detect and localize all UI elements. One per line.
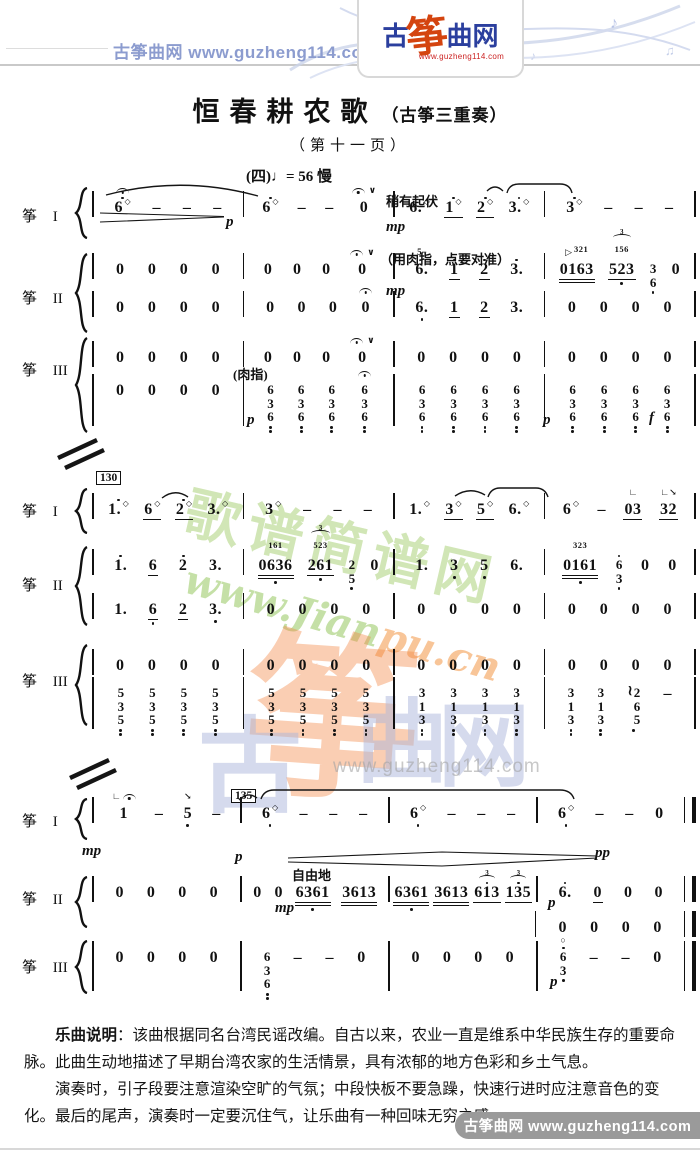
note-body: 0 — [321, 262, 332, 278]
note-body: 313 — [597, 686, 606, 727]
note-body: 25 — [348, 558, 357, 585]
articulation-mark: 5⌐ — [417, 248, 427, 257]
note-body: 6◇ — [409, 806, 427, 822]
measure: ○63––0 — [538, 932, 684, 985]
measure: 6◇–∟03∟↘32 — [545, 484, 694, 528]
note-number: 3. — [509, 200, 522, 216]
note-body: 0 — [177, 885, 188, 901]
note-number: 0 — [329, 300, 338, 316]
note-number: 2 — [179, 558, 188, 574]
note-body: 535 — [267, 686, 276, 727]
note-body: 636 — [512, 383, 521, 424]
rest-token: 0 — [263, 244, 274, 286]
note-body: 636 — [263, 950, 272, 991]
note-body: 6◇ — [113, 200, 131, 216]
measure: 3◇––– — [545, 182, 694, 224]
measure: 0000 — [94, 244, 243, 286]
note-number: 3. — [209, 558, 222, 574]
note-body: 3◇ — [565, 200, 583, 216]
chord-token: 535 — [299, 668, 308, 736]
tremolo-icon: ◇ — [455, 500, 461, 508]
note-number: 0 — [506, 950, 515, 966]
note-token: 6. — [414, 282, 429, 324]
chord-stack: 636 — [328, 383, 335, 424]
note-token: 3◇ — [264, 484, 282, 526]
note-token: 3. — [208, 584, 223, 626]
chord-note: 3 — [419, 713, 426, 727]
chord-token: 535 — [211, 668, 220, 736]
note-body: – — [594, 806, 605, 822]
note-number: 135 — [506, 885, 532, 901]
chord-token: ≀265 — [626, 668, 641, 735]
note-token: 1610636 — [258, 540, 294, 587]
dash-token: – — [624, 788, 635, 830]
note-body: 1 — [449, 262, 460, 280]
chord-note: 3 — [601, 397, 608, 411]
note-body: 0 — [631, 300, 642, 316]
chord-note: 3 — [419, 686, 426, 700]
note-body: 0 — [115, 300, 126, 316]
measure: 0000 — [94, 365, 243, 407]
note-number: 5 — [477, 502, 486, 518]
octave-dot — [363, 426, 366, 429]
note-token: 1.◇ — [107, 484, 130, 526]
measure: 313313≀265– — [545, 668, 694, 736]
note-body: – — [634, 200, 645, 216]
chord-note: 6 — [616, 558, 623, 572]
note-token: 2 — [479, 282, 490, 326]
note-token: 2 — [178, 540, 189, 582]
note-body: 0 — [631, 350, 642, 366]
note-body: – — [603, 200, 614, 216]
note-marks: 161 — [268, 540, 282, 553]
note-marks — [359, 282, 372, 295]
note-body: 0 — [652, 950, 663, 966]
note-body: 313 — [418, 686, 427, 727]
chord-token: 636 — [568, 365, 577, 433]
chord-note: 6 — [267, 410, 274, 424]
note-number: 0 — [513, 602, 522, 618]
note-body: 313 — [481, 686, 490, 727]
note-body: 63 — [559, 950, 568, 977]
note-number: 0 — [653, 950, 662, 966]
annotation-reh: 130 — [96, 471, 121, 485]
chord-note: 1 — [450, 700, 457, 714]
breath-mark: ∨ — [367, 336, 374, 345]
octave-dot — [571, 426, 574, 429]
note-body: 6 — [148, 558, 159, 576]
chord-stack: 636 — [419, 383, 426, 424]
octave-dot — [599, 729, 602, 732]
part-label: 筝 II — [22, 888, 63, 909]
note-token: 3◇ — [565, 182, 583, 224]
chord-note: 3 — [632, 397, 639, 411]
chord-stack: 313 — [513, 686, 520, 727]
octave-dot — [452, 733, 455, 736]
octave-dot — [270, 733, 273, 736]
note-number: 2 — [480, 262, 489, 278]
dash-token: – — [212, 182, 223, 224]
octave-dot — [214, 729, 217, 732]
note-marks — [116, 182, 129, 195]
fermata-icon — [350, 338, 363, 345]
note-body: 636 — [631, 383, 640, 424]
articulation-mark: ∟ — [112, 792, 121, 801]
note-token: 6◇ — [409, 788, 427, 830]
note-number: 6. — [510, 558, 523, 574]
chord-stack: 636 — [482, 383, 489, 424]
note-number: 0 — [298, 602, 307, 618]
note-token: 5⌐6. — [414, 244, 429, 286]
note-token: 5◇ — [476, 484, 494, 528]
tremolo-icon: ◇ — [222, 500, 228, 508]
chord-note: 1 — [568, 700, 575, 714]
note-token: 2 — [178, 584, 189, 628]
note-number: 3 — [445, 502, 454, 518]
octave-dot — [421, 426, 424, 429]
note-number: 6 — [410, 806, 419, 822]
note-body: 0 — [369, 558, 380, 574]
dash-token: – — [151, 182, 162, 224]
rest-token: 0 — [265, 282, 276, 324]
tremolo-icon: ◇ — [123, 500, 129, 508]
rest-token: 0 — [567, 584, 578, 626]
note-token: ∟03 — [623, 484, 642, 528]
note-number: 0 — [672, 262, 681, 278]
note-body: 535 — [180, 686, 189, 727]
note-body: 0 — [263, 262, 274, 278]
note-token: 6◇ — [557, 788, 575, 830]
low-octave-dots — [186, 822, 189, 830]
chord-token: 636 — [600, 365, 609, 433]
measure: 0000 — [395, 584, 544, 626]
chord-token: 636 — [512, 365, 521, 433]
note-number: 0163 — [560, 262, 594, 278]
note-number: 0 — [178, 950, 187, 966]
low-octave-dots — [570, 727, 573, 736]
octave-dot — [515, 733, 518, 736]
note-number: – — [359, 806, 368, 822]
system-3: 135mpppp自由地mppp筝 I∟1–↘5–6◇–––6◇–––6◇––0筝… — [0, 788, 700, 1020]
note-body: 0 — [115, 350, 126, 366]
chord-note: 6 — [298, 383, 305, 397]
measure: 6◇––– — [242, 788, 388, 830]
rest-token: 0 — [640, 540, 651, 582]
chord-note: 6 — [450, 383, 457, 397]
chord-token: 313 — [481, 668, 490, 736]
note-number: 6. — [559, 885, 572, 901]
rest-token: 0 — [115, 244, 126, 286]
note-number: 6. — [409, 200, 422, 216]
chord-note: 6 — [560, 950, 567, 964]
note-marks: ∟ — [112, 788, 136, 801]
tremolo-icon: ◇ — [487, 500, 493, 508]
chord-note: 6 — [419, 410, 426, 424]
dash-token: – — [324, 932, 335, 974]
note-body: 0161 — [562, 558, 598, 579]
chord-note: 3 — [598, 686, 605, 700]
note-body: 6◇ — [557, 806, 575, 822]
note-number: – — [665, 200, 674, 216]
note-marks: ↘ — [184, 788, 192, 801]
note-marks: ○ — [560, 932, 565, 945]
chord-note: 3 — [482, 397, 489, 411]
note-marks — [358, 365, 371, 378]
chord-note: 5 — [212, 686, 219, 700]
octave-dot — [421, 729, 424, 732]
note-body: 0 — [505, 950, 516, 966]
barline — [694, 493, 696, 519]
rest-token: 0 — [115, 365, 126, 407]
note-number: 6 — [114, 200, 123, 216]
note-token: 6. — [509, 540, 524, 582]
chord-token: 636 — [631, 365, 640, 433]
note-number: 6. — [415, 300, 428, 316]
note-number: 0 — [632, 602, 641, 618]
note-body: 0 — [480, 602, 491, 618]
chord-stack: 535 — [149, 686, 156, 727]
note-token: 3230161 — [562, 540, 598, 587]
note-token: 1 — [449, 282, 460, 326]
note-number: 0 — [148, 350, 157, 366]
note-number: 1 — [450, 300, 459, 316]
note-number: 6 — [149, 558, 158, 574]
breath-mark: ∨ — [369, 186, 376, 195]
note-body: 0 — [211, 300, 222, 316]
part-label: 筝 I — [22, 205, 58, 226]
note-token: 3. — [208, 540, 223, 582]
note-marks: ∨ — [350, 244, 374, 257]
note-number: – — [325, 950, 334, 966]
grace-notes: 156 — [615, 244, 629, 254]
chord-token: 535 — [362, 668, 371, 736]
octave-dot — [300, 426, 303, 429]
note-body: 2 — [479, 262, 490, 280]
note-number: 0 — [322, 350, 331, 366]
notation-line: 000000006.123.0000 — [92, 282, 696, 326]
fermata-icon — [350, 250, 363, 257]
note-body: 0 — [512, 350, 523, 366]
note-number: 0 — [360, 200, 369, 216]
note-number: 0 — [253, 885, 262, 901]
note-number: – — [447, 806, 456, 822]
rest-token: 0 — [147, 282, 158, 324]
note-body: 63 — [615, 558, 624, 585]
note-body: 0 — [361, 602, 372, 618]
chord-note: 3 — [181, 700, 188, 714]
chord-note: 3 — [149, 700, 156, 714]
note-number: 0 — [358, 350, 367, 366]
low-octave-dots — [452, 727, 455, 736]
chord-token: 636 — [418, 365, 427, 433]
note-body: 0 — [623, 885, 634, 901]
part-label: 筝 II — [22, 574, 63, 595]
rest-token: 0 — [410, 932, 421, 974]
note-token: 3. — [509, 244, 524, 286]
note-body: 636 — [418, 383, 427, 424]
note-body: 2◇ — [476, 200, 494, 218]
note-token: 6◇ — [113, 182, 131, 224]
low-octave-dots — [302, 727, 305, 736]
note-body: – — [597, 502, 608, 518]
rest-token: 0 — [297, 584, 308, 626]
chord-note: 5 — [634, 713, 641, 727]
chord-token: 636 — [266, 365, 275, 433]
note-body: 0 — [146, 950, 157, 966]
note-body: 5 — [479, 558, 490, 574]
note-number: – — [303, 502, 312, 518]
chord-token: 535 — [330, 668, 339, 736]
note-body: 0 — [593, 885, 604, 903]
rest-token: 0 — [211, 365, 222, 407]
note-body: – — [506, 806, 517, 822]
chord-stack: 313 — [568, 686, 575, 727]
chord-token: 636 — [263, 932, 272, 1000]
note-body: 0 — [114, 950, 125, 966]
low-octave-dots — [421, 727, 424, 736]
octave-dot — [562, 979, 565, 982]
note-body: 1. — [113, 602, 128, 618]
note-number: 0 — [449, 602, 458, 618]
chord-note: 3 — [482, 713, 489, 727]
chord-note: 6 — [569, 383, 576, 397]
chord-stack: 313 — [450, 686, 457, 727]
rest-token: ∨0 — [352, 182, 376, 224]
rest-token: 0 — [147, 244, 158, 286]
note-body: 535 — [362, 686, 371, 727]
note-number: 3 — [265, 502, 274, 518]
chord-note: 3 — [513, 713, 520, 727]
rest-token: 0 — [567, 282, 578, 324]
rest-token: 0 — [114, 932, 125, 974]
tremolo-icon: ◇ — [272, 804, 278, 812]
chord-note: 5 — [300, 713, 307, 727]
note-body: 0 — [662, 350, 673, 366]
note-number: – — [152, 200, 161, 216]
note-number: 0 — [663, 300, 672, 316]
part-brace — [74, 337, 88, 433]
note-number: 0 — [568, 350, 577, 366]
dash-token: – — [664, 182, 675, 224]
chord-note: 3 — [450, 397, 457, 411]
octave-dot — [484, 729, 487, 732]
note-body: 535 — [299, 686, 308, 727]
note-number: 2 — [480, 300, 489, 316]
rest-token: 0 — [329, 584, 340, 626]
tremolo-icon: ◇ — [186, 500, 192, 508]
low-octave-dots — [599, 727, 602, 736]
note-number: 6361 — [296, 885, 330, 901]
octave-dot — [269, 426, 272, 429]
note-number: 0 — [147, 950, 156, 966]
note-number: 1 — [450, 262, 459, 278]
rest-token: 0 — [179, 365, 190, 407]
note-number: 0 — [116, 383, 125, 399]
barline — [694, 677, 696, 729]
note-body: 0 — [297, 602, 308, 618]
note-body: 6. — [558, 885, 573, 901]
chord-note: 6 — [601, 410, 608, 424]
rest-token: 0 — [599, 584, 610, 626]
chord-stack: 636 — [361, 383, 368, 424]
low-octave-dots — [483, 574, 486, 582]
note-marks — [510, 867, 526, 880]
chord-note: 3 — [268, 700, 275, 714]
note-number: 0 — [449, 350, 458, 366]
note-body: 0 — [211, 383, 222, 399]
chord-note: 3 — [650, 262, 657, 276]
measure: 0000 — [244, 584, 393, 626]
octave-dot — [632, 729, 635, 732]
rest-token: 0 — [662, 584, 673, 626]
rest-token: 0 — [209, 932, 220, 974]
note-number: – — [664, 686, 673, 702]
rest-token: 0 — [448, 584, 459, 626]
note-number: 0 — [668, 558, 677, 574]
measure: ∟1–↘5– — [94, 788, 240, 830]
note-body: – — [324, 200, 335, 216]
note-body: 636 — [481, 383, 490, 424]
octave-dot — [484, 733, 487, 736]
note-body: 2◇ — [175, 502, 193, 520]
note-number: 03 — [624, 502, 641, 518]
grace-notes: 321 — [574, 244, 588, 254]
tremolo-icon: ◇ — [420, 804, 426, 812]
chord-note: 5 — [118, 713, 125, 727]
note-body: 32 — [659, 502, 678, 520]
note-number: 1. — [114, 602, 127, 618]
note-number: 261 — [308, 558, 334, 574]
note-body: 0 — [252, 885, 263, 901]
note-number: 0 — [624, 885, 633, 901]
chord-note: 6 — [601, 383, 608, 397]
note-number: 0 — [370, 558, 379, 574]
note-number: 3. — [510, 300, 523, 316]
chord-stack: 25 — [349, 558, 356, 585]
note-number: 0 — [148, 262, 157, 278]
dash-token: – — [634, 182, 645, 224]
low-octave-dots — [152, 620, 155, 628]
chord-note: 6 — [664, 383, 671, 397]
chord-stack: 636 — [513, 383, 520, 424]
annotation-dyn: pp — [595, 845, 610, 862]
chord-note: 3 — [513, 397, 520, 411]
note-number: – — [333, 502, 342, 518]
note-number: 6. — [509, 502, 522, 518]
note-body: 0 — [211, 350, 222, 366]
chord-note: 5 — [363, 713, 370, 727]
note-marks: ∟ — [629, 484, 638, 497]
chord-note: 5 — [149, 686, 156, 700]
note-body: 1.◇ — [107, 502, 130, 518]
note-number: 0 — [600, 300, 609, 316]
note-token: 6.◇ — [508, 484, 531, 526]
note-number: 0 — [115, 885, 124, 901]
note-body: 0 — [567, 350, 578, 366]
note-number: 1 — [119, 806, 128, 822]
chord-stack: 63 — [560, 950, 567, 977]
chord-note: 6 — [664, 410, 671, 424]
part-brace — [74, 798, 88, 840]
note-number: 5 — [184, 806, 193, 822]
dash-token: – — [211, 788, 222, 830]
low-octave-dots — [565, 822, 568, 830]
octave-dot — [453, 576, 456, 579]
rest-token: 0 — [177, 932, 188, 974]
low-octave-dots — [151, 727, 154, 736]
octave-dot — [330, 426, 333, 429]
part-brace — [74, 488, 88, 534]
